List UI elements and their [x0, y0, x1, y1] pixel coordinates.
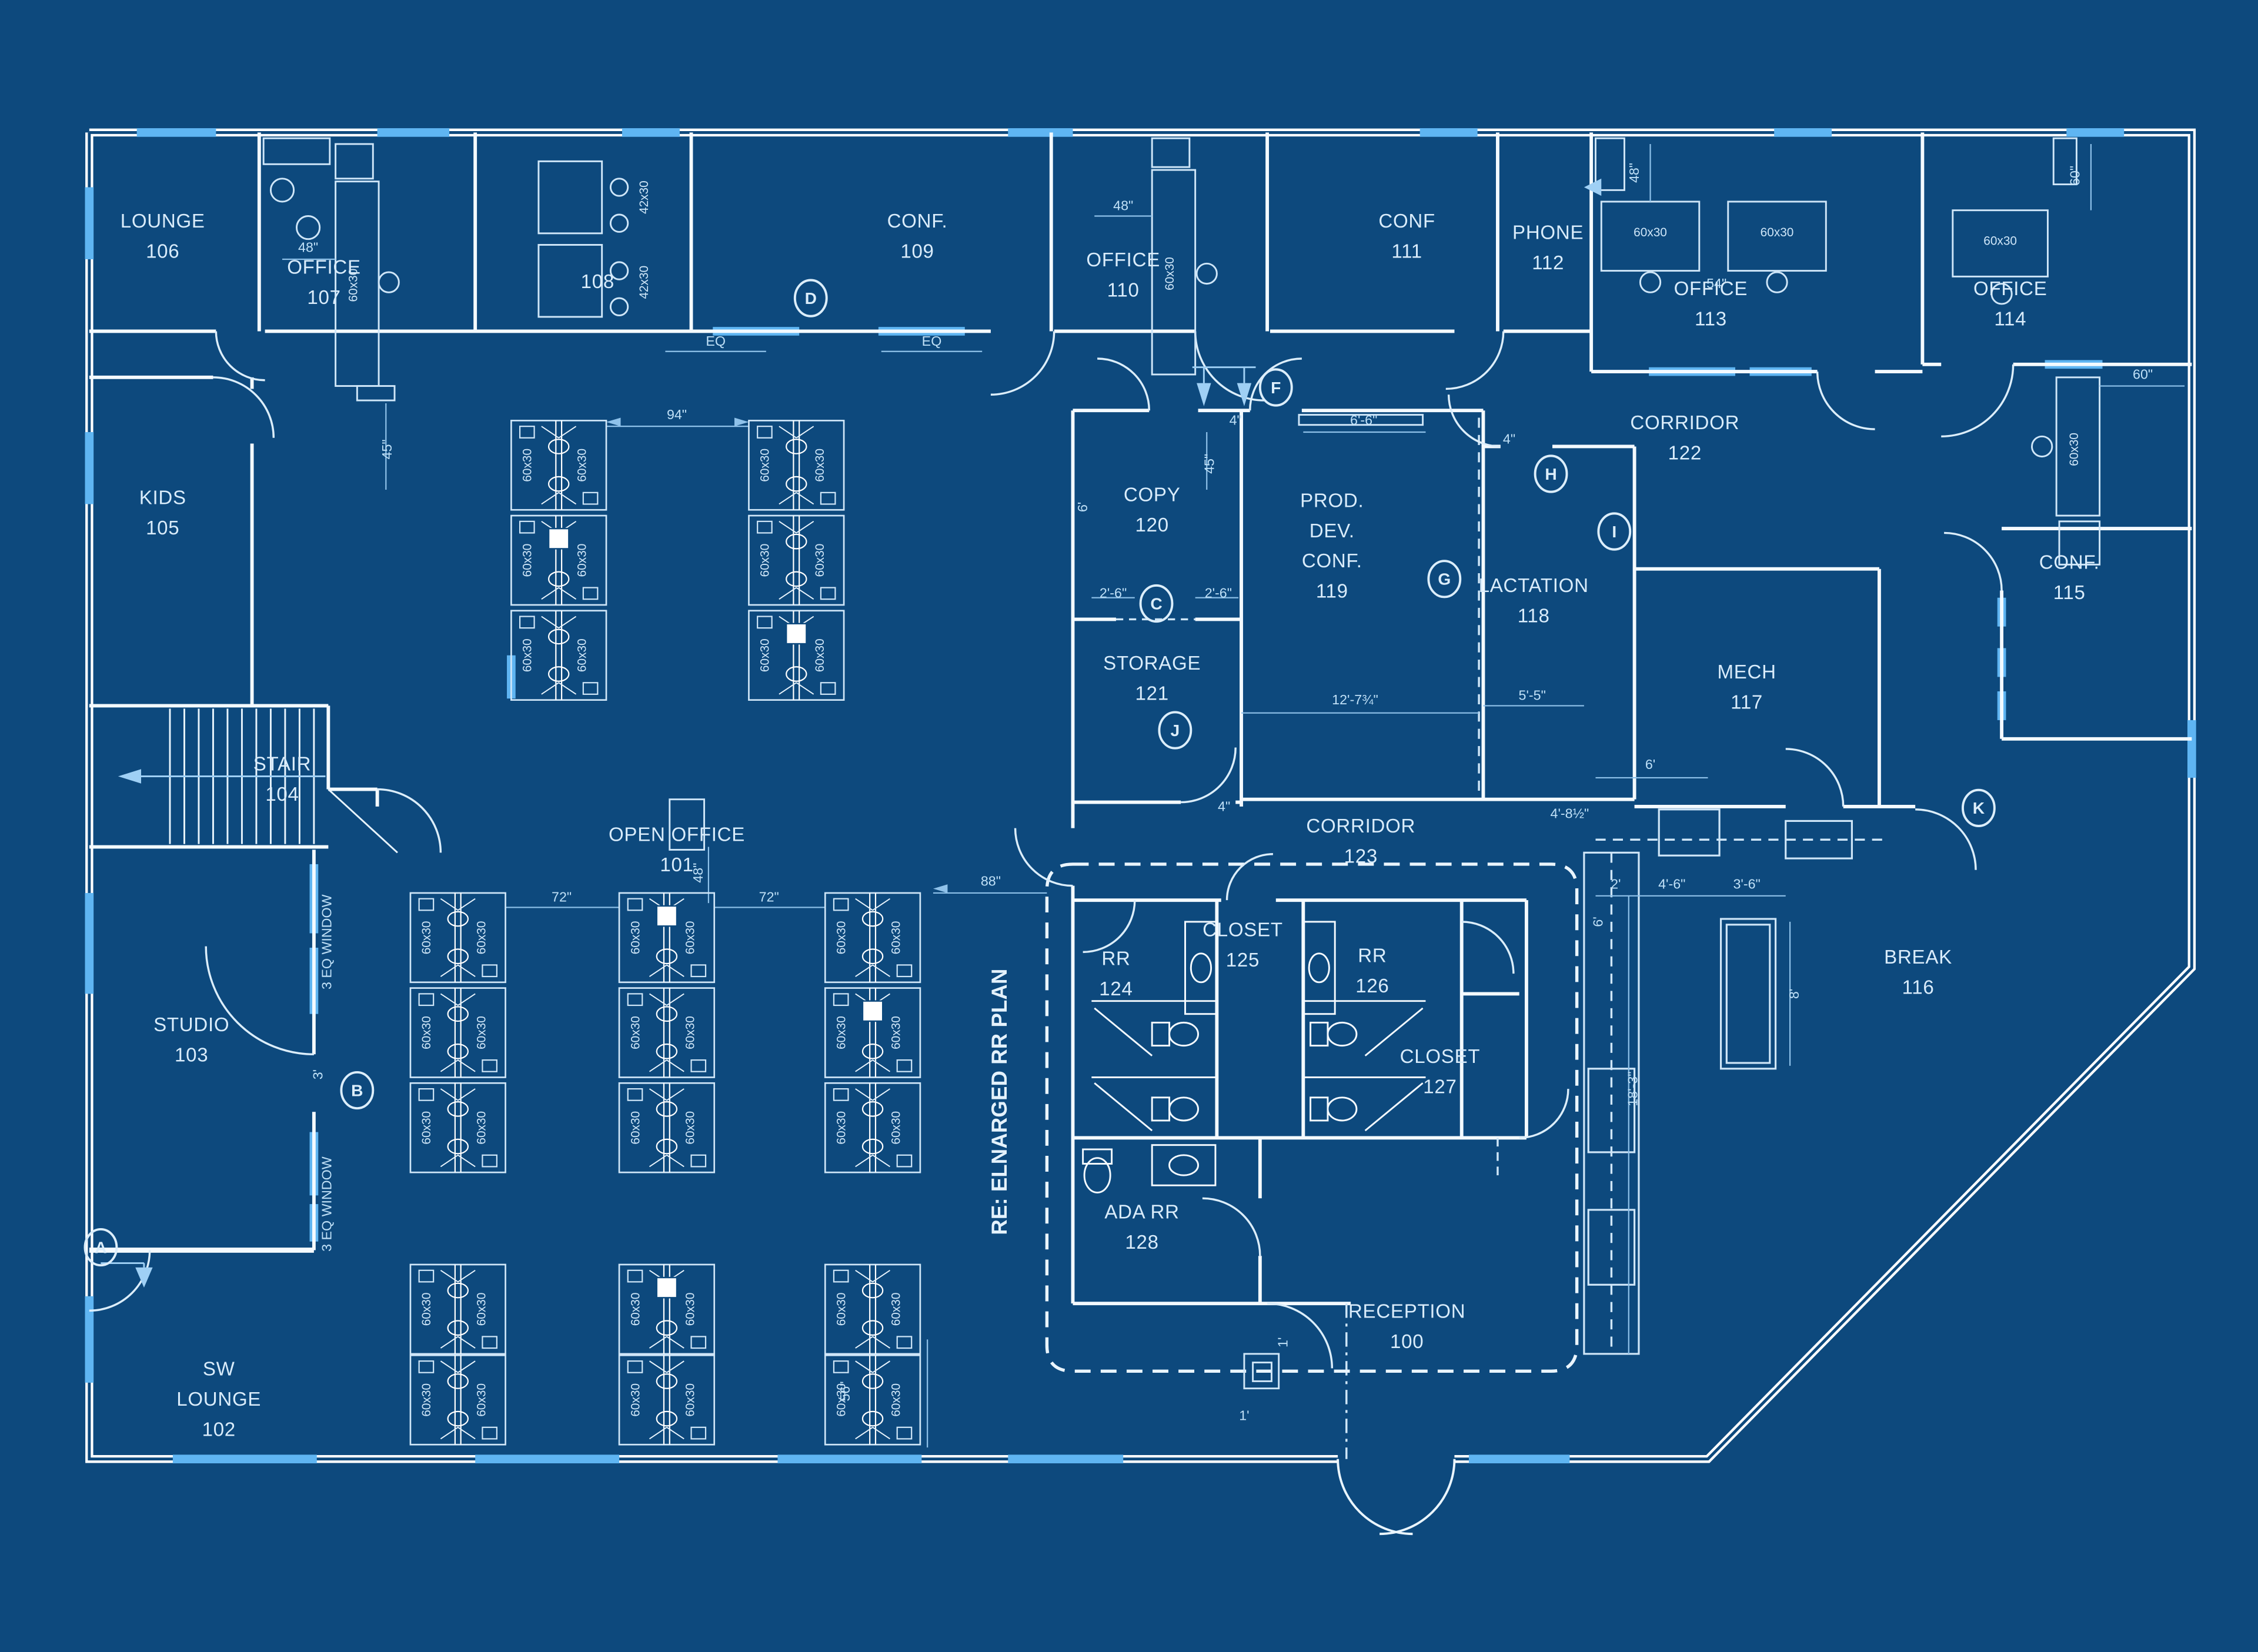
desk-module: 60x3060x30 [825, 988, 920, 1078]
desk-size-label: 60x30 [835, 1016, 849, 1049]
reference-letter-F: F [1260, 369, 1292, 405]
desk-size-label: 60x30 [890, 1016, 903, 1049]
room-label-closet-127: CLOSET [1400, 1046, 1481, 1068]
task-chair [1767, 272, 1787, 292]
dimension-label: 48" [298, 240, 318, 255]
reference-letter-text: K [1973, 799, 1985, 817]
dimension-label: 54" [1706, 276, 1726, 291]
room-label-sw-lounge-102: 102 [202, 1419, 236, 1441]
rr-plan-dashed-boundary [1047, 864, 1576, 1371]
dimension-label: 18'-3" [1625, 1071, 1640, 1106]
room-label-break-116: BREAK [1884, 947, 1952, 968]
chair [610, 298, 627, 315]
room-label-stair-104: STAIR [253, 754, 312, 775]
dimension-label: 88" [981, 874, 1001, 889]
dimension-label: 2' [1611, 877, 1621, 892]
desk-size-label: 60x30 [683, 1016, 697, 1049]
desk-size-label: 60x30 [576, 449, 589, 482]
desk-size-label: 60x30 [683, 1111, 697, 1145]
dimension-label: 72" [759, 889, 779, 905]
room-label-rr-126: RR [1358, 945, 1387, 967]
room-label-reception-100: RECEPTION [1348, 1301, 1465, 1323]
dimension-label: 48" [1626, 163, 1642, 183]
entrance-double-door [1338, 1459, 1454, 1534]
chair [610, 215, 627, 232]
room-label-conf-109: CONF. [887, 210, 948, 232]
desk-size-label: 60x30 [420, 921, 433, 955]
desk-module: 60x3060x30 [619, 893, 714, 982]
desk-size-label: 60x30 [890, 1111, 903, 1145]
room-label-copy-120: COPY [1124, 484, 1181, 506]
reference-letter-B: B [341, 1072, 373, 1108]
room-label-office-114: 114 [1994, 309, 2026, 330]
dimension-label: EQ [922, 333, 942, 349]
reference-letter-D: D [795, 280, 827, 316]
room-label-prod-dev-conf-119: CONF. [1302, 550, 1362, 572]
desk-module: 60x3060x30 [619, 1355, 714, 1444]
desk-size-label: 60x30 [759, 449, 772, 482]
desk-module: 60x3060x30 [511, 611, 606, 700]
room-label-phone-112: PHONE [1512, 222, 1584, 244]
desk-module: 60x3060x30 [511, 420, 606, 510]
desk-size-label: 60x30 [521, 544, 535, 577]
room-label-lounge-106: LOUNGE [121, 210, 205, 232]
island-top [1726, 925, 1769, 1063]
reference-letter-C: C [1141, 586, 1173, 621]
dimension-label: 42x30 [637, 266, 651, 299]
desk-modules-layer: 60x3060x3060x3060x3060x3060x3060x3060x30… [410, 420, 920, 1444]
desk-size-label: 60x30 [629, 1016, 642, 1049]
dimension-label: 2'-6" [1100, 586, 1127, 601]
room-label-break-116: 116 [1902, 977, 1935, 998]
desk-size-label: 60x30 [683, 921, 697, 955]
desk-module: 60x3060x30 [410, 1083, 506, 1172]
interior-walls [89, 132, 2192, 1303]
dimension-label: 4" [1230, 413, 1242, 428]
annotation-label: RE: ELNARGED RR PLAN [987, 969, 1011, 1235]
desk-size-label: 60x30 [835, 921, 849, 955]
desk-module: 60x3060x30 [619, 1083, 714, 1172]
dimension-label: 60x30 [1634, 226, 1667, 239]
dimension-label: 48" [690, 863, 706, 883]
desk-size-label: 60x30 [576, 544, 589, 577]
dimension-label: 45" [1201, 454, 1217, 474]
desk-size-label: 60x30 [420, 1016, 433, 1049]
room-label-prod-dev-conf-119: DEV. [1310, 520, 1355, 542]
dimension-label: 6'-6" [1350, 413, 1377, 428]
dimension-label: 4'-6" [1658, 877, 1685, 892]
room-label-office-110: 110 [1107, 280, 1140, 302]
reference-letter-text: D [805, 289, 817, 307]
reference-letter-G: G [1428, 561, 1460, 597]
room-label-room-108: 108 [581, 271, 614, 293]
room-label-copy-120: 120 [1135, 514, 1169, 536]
room-label-storage-121: STORAGE [1103, 653, 1201, 674]
dimension-lines [282, 144, 2184, 1447]
room-label-sw-lounge-102: LOUNGE [176, 1389, 261, 1410]
desk-size-label: 60x30 [890, 921, 903, 955]
monitor [1152, 138, 1190, 167]
island [1721, 919, 1776, 1069]
desk-size-label: 60x30 [629, 1383, 642, 1417]
desk-size-label: 60x30 [475, 1016, 488, 1049]
reference-letter-text: C [1150, 594, 1162, 613]
room-label-rr-124: 124 [1099, 978, 1133, 1000]
dimension-label: 60x30 [2067, 433, 2081, 466]
room-label-office-114: OFFICE [1973, 278, 2047, 300]
room-label-rr-124: RR [1101, 948, 1130, 969]
lounge-chair [270, 179, 293, 202]
room-label-conf-115: 115 [2053, 582, 2086, 604]
desk-size-label: 60x30 [890, 1383, 903, 1417]
desk-size-label: 60x30 [420, 1111, 433, 1145]
room-label-lactation-118: LACTATION [1479, 575, 1589, 597]
desk-size-label: 60x30 [683, 1293, 697, 1326]
dimension-label: 4" [1218, 798, 1230, 814]
dimension-label: 3' [310, 1069, 326, 1079]
dimension-label: 3'-6" [1733, 877, 1760, 892]
desk-module: 60x3060x30 [749, 420, 844, 510]
dimension-label: 8' [1786, 989, 1802, 999]
desk-module: 60x3060x30 [825, 1083, 920, 1172]
room-label-kids-105: 105 [146, 517, 179, 539]
room-label-mech-117: MECH [1717, 661, 1776, 683]
desk-size-label: 60x30 [835, 1293, 849, 1326]
table [539, 161, 602, 233]
reference-letter-I: I [1598, 513, 1630, 549]
room-label-conf-111: 111 [1391, 241, 1422, 263]
room-label-conf-109: 109 [900, 241, 934, 263]
task-chair [1197, 263, 1217, 283]
room-label-corridor-123: 123 [1344, 845, 1378, 867]
reference-letter-H: H [1535, 456, 1567, 491]
desk-size-label: 60x30 [475, 921, 488, 955]
room-label-lactation-118: 118 [1518, 605, 1550, 627]
dimension-label: 60x30 [1983, 234, 2017, 248]
stair-treads [118, 708, 398, 852]
room-label-open-office-101: OPEN OFFICE [609, 824, 745, 846]
desk-module: 60x3060x30 [511, 516, 606, 605]
dimension-label: 60" [2133, 366, 2153, 382]
task-chair [379, 272, 399, 292]
dimension-label: 60" [2067, 166, 2082, 186]
desk-size-label: 60x30 [475, 1293, 488, 1326]
dimension-label: 12'-7¾" [1332, 692, 1378, 707]
room-label-ada-rr-128: ADA RR [1104, 1202, 1179, 1223]
dimension-label: 1' [1275, 1337, 1290, 1347]
desk-module: 60x3060x30 [825, 1265, 920, 1354]
room-label-closet-127: 127 [1423, 1076, 1457, 1098]
room-label-studio-103: STUDIO [153, 1014, 229, 1036]
room-label-reception-100: 100 [1390, 1331, 1424, 1353]
desk-module: 60x3060x30 [410, 988, 506, 1078]
furniture [101, 138, 2099, 1388]
room-label-conf-115: CONF. [2039, 552, 2100, 574]
desk-size-label: 60x30 [475, 1383, 488, 1417]
room-label-rr-126: 126 [1355, 975, 1389, 997]
desk-size-label: 60x30 [835, 1111, 849, 1145]
dimension-label: 45" [379, 439, 395, 459]
monitor [336, 144, 373, 179]
dimension-label: 6' [1591, 917, 1606, 927]
reference-letter-text: B [351, 1081, 363, 1099]
reference-letter-text: I [1612, 523, 1616, 541]
floorplan-svg: 60x3060x3060x3060x3060x3060x3060x3060x30… [0, 0, 2258, 1652]
room-label-phone-112: 112 [1532, 252, 1564, 274]
desk-size-label: 60x30 [890, 1293, 903, 1326]
dimension-label: 4'-8½" [1551, 806, 1589, 821]
room-label-prod-dev-conf-119: 119 [1316, 581, 1348, 603]
room-label-corridor-122: 122 [1668, 443, 1702, 464]
cabinet [1659, 810, 1719, 855]
annotation-label: 3 EQ WINDOW [319, 894, 334, 989]
reference-letter-text: A [95, 1238, 106, 1256]
task-chair [2032, 436, 2052, 456]
desk-size-label: 60x30 [759, 544, 772, 577]
dimension-label: 1' [1239, 1408, 1249, 1423]
dimension-label: EQ [706, 333, 726, 349]
door-arcs [89, 331, 2013, 1368]
dimension-label: 6' [1075, 502, 1090, 512]
dimension-label: 60x30 [1761, 226, 1794, 239]
desk-size-label: 60x30 [813, 544, 827, 577]
desk-size-label: 60x30 [420, 1383, 433, 1417]
dimension-label: 4" [1503, 432, 1515, 447]
reference-letter-text: G [1438, 570, 1451, 588]
annotation-label: 3 EQ WINDOW [319, 1156, 334, 1252]
room-label-office-113: 113 [1695, 309, 1727, 330]
lounge-chair [296, 216, 319, 239]
desk-module: 60x3060x30 [619, 1265, 714, 1354]
desk-module: 60x3060x30 [749, 516, 844, 605]
room-label-office-107: 107 [307, 287, 340, 309]
lounge-credenza [263, 138, 330, 164]
desk-size-label: 60x30 [521, 449, 535, 482]
room-label-lounge-106: 106 [146, 241, 179, 263]
reference-letter-text: J [1171, 721, 1180, 740]
task-chair [1640, 272, 1660, 292]
desk-size-label: 60x30 [683, 1383, 697, 1417]
room-label-studio-103: 103 [175, 1045, 208, 1066]
room-label-corridor-122: CORRIDOR [1630, 412, 1739, 434]
dimension-label: 60x30 [1163, 257, 1177, 290]
desk-module: 60x3060x30 [825, 893, 920, 982]
room-label-office-110: OFFICE [1086, 249, 1160, 271]
reference-letter-text: H [1545, 465, 1556, 483]
desk-size-label: 60x30 [521, 638, 535, 672]
room-label-closet-125: CLOSET [1203, 919, 1283, 941]
dimension-label: 72" [552, 889, 572, 905]
desk-size-label: 60x30 [576, 638, 589, 672]
desk-module: 60x3060x30 [410, 893, 506, 982]
dimension-label: 6' [1645, 757, 1655, 772]
desk-size-label: 60x30 [813, 449, 827, 482]
dimension-label: 94" [667, 407, 687, 422]
dimension-label: 60x30 [346, 269, 360, 302]
dimension-label: 2'-6" [1205, 586, 1232, 601]
room-label-prod-dev-conf-119: PROD. [1300, 490, 1364, 511]
dimension-label: 5'-5" [1519, 688, 1546, 703]
desk-size-label: 60x30 [475, 1111, 488, 1145]
desk-size-label: 60x30 [629, 1293, 642, 1326]
room-label-open-office-101: 101 [660, 854, 693, 876]
desk-size-label: 60x30 [813, 638, 827, 672]
reference-letter-text: F [1271, 379, 1281, 397]
room-label-storage-121: 121 [1135, 683, 1169, 705]
room-label-conf-111: CONF [1378, 210, 1435, 232]
reference-letter-K: K [1963, 790, 1995, 826]
desk-size-label: 60x30 [629, 921, 642, 955]
desk-module: 60x3060x30 [410, 1265, 506, 1354]
desk-size-label: 60x30 [759, 638, 772, 672]
chair [610, 179, 627, 196]
down-arrow [1197, 383, 1211, 406]
room-label-corridor-123: CORRIDOR [1306, 815, 1415, 837]
room-label-mech-117: 117 [1731, 691, 1763, 713]
room-label-kids-105: KIDS [139, 487, 186, 509]
room-label-closet-125: 125 [1226, 949, 1260, 971]
dimension-label: 56" [837, 1382, 853, 1402]
desk-size-label: 60x30 [629, 1111, 642, 1145]
room-label-ada-rr-128: 128 [1125, 1232, 1158, 1253]
room-label-stair-104: 104 [265, 784, 299, 805]
desk-module: 60x3060x30 [749, 611, 844, 700]
reference-letter-J: J [1159, 712, 1191, 748]
kitchen-break [1584, 810, 1852, 1354]
desk-module: 60x3060x30 [619, 988, 714, 1078]
room-label-sw-lounge-102: SW [203, 1359, 235, 1380]
dimension-labels-layer: 48"45"60x3042x3042x30EQEQ48"60x3045"60x3… [298, 163, 2153, 1423]
blueprint-floor-plan: 60x3060x3060x3060x3060x3060x3060x3060x30… [0, 0, 2258, 1652]
side-table [357, 386, 395, 400]
dimension-label: 42x30 [637, 180, 651, 214]
desk-module: 60x3060x30 [410, 1355, 506, 1444]
room-labels-layer: LOUNGE106OFFICE107108CONF.109OFFICE110CO… [121, 210, 2100, 1440]
dimension-label: 48" [1113, 198, 1133, 213]
desk-size-label: 60x30 [420, 1293, 433, 1326]
